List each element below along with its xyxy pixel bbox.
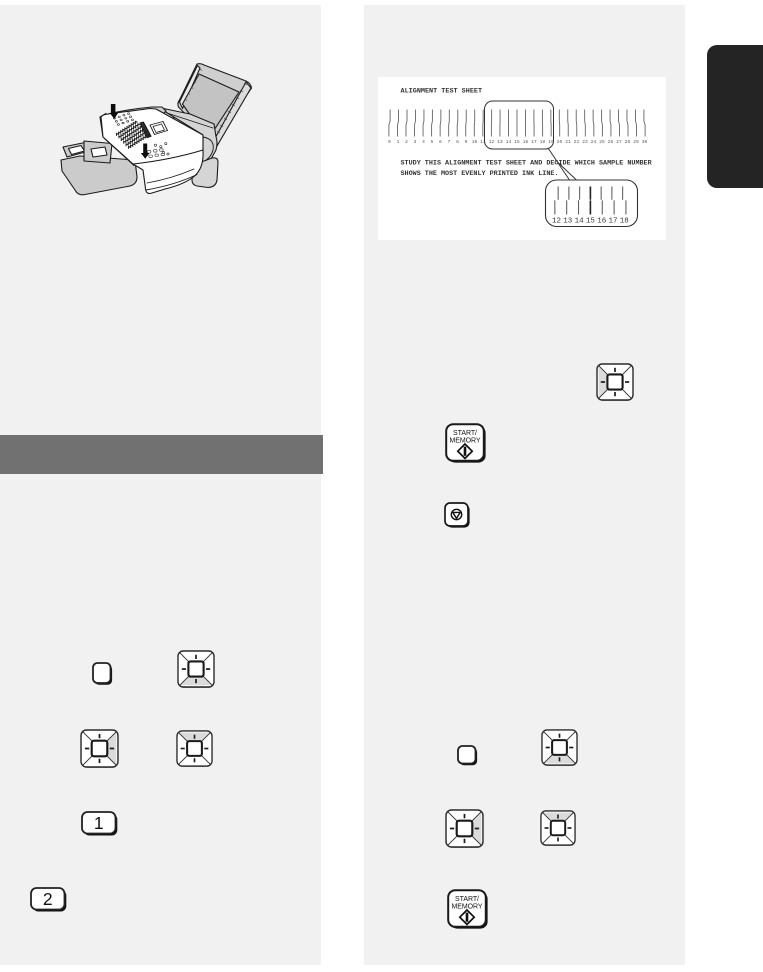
svg-text:14: 14 [506, 139, 512, 145]
svg-text:SHOWS THE MOST EVENLY PRINTED: SHOWS THE MOST EVENLY PRINTED INK LINE. [401, 170, 559, 178]
svg-text:4: 4 [422, 139, 425, 145]
svg-text:22: 22 [574, 139, 580, 145]
svg-text:17: 17 [608, 218, 617, 226]
svg-text:28: 28 [625, 139, 631, 145]
svg-text:1: 1 [94, 813, 104, 833]
svg-text:15: 15 [586, 218, 596, 226]
svg-text:7: 7 [448, 139, 451, 145]
svg-text:26: 26 [608, 139, 614, 145]
svg-text:1: 1 [397, 139, 400, 145]
svg-text:START/: START/ [453, 430, 477, 437]
svg-text:16: 16 [597, 218, 607, 226]
svg-text:13: 13 [563, 218, 573, 226]
svg-text:12: 12 [489, 139, 495, 145]
svg-text:5: 5 [431, 139, 434, 145]
svg-text:START/: START/ [455, 896, 479, 903]
svg-text:13: 13 [497, 139, 503, 145]
svg-text:18: 18 [540, 139, 546, 145]
svg-text:30: 30 [642, 139, 648, 145]
svg-text:12: 12 [552, 218, 561, 226]
svg-text:14: 14 [575, 218, 585, 226]
svg-text:8: 8 [456, 139, 459, 145]
svg-text:29: 29 [633, 139, 639, 145]
svg-text:3: 3 [414, 139, 417, 145]
svg-text:24: 24 [591, 139, 597, 145]
svg-text:ALIGNMENT TEST SHEET: ALIGNMENT TEST SHEET [401, 88, 483, 96]
svg-text:18: 18 [620, 218, 629, 226]
svg-text:9: 9 [465, 139, 468, 145]
svg-text:2: 2 [405, 139, 408, 145]
svg-text:2: 2 [43, 889, 53, 909]
svg-text:6: 6 [439, 139, 442, 145]
svg-text:16: 16 [523, 139, 529, 145]
svg-text:0: 0 [388, 139, 391, 145]
svg-text:23: 23 [582, 139, 588, 145]
svg-text:17: 17 [531, 139, 537, 145]
svg-text:15: 15 [514, 139, 520, 145]
svg-text:10: 10 [472, 139, 478, 145]
svg-text:27: 27 [616, 139, 622, 145]
svg-text:20: 20 [557, 139, 563, 145]
svg-text:25: 25 [599, 139, 605, 145]
svg-text:21: 21 [565, 139, 571, 145]
svg-text:STUDY THIS ALIGNMENT TEST SHEE: STUDY THIS ALIGNMENT TEST SHEET AND DECI… [401, 160, 653, 168]
